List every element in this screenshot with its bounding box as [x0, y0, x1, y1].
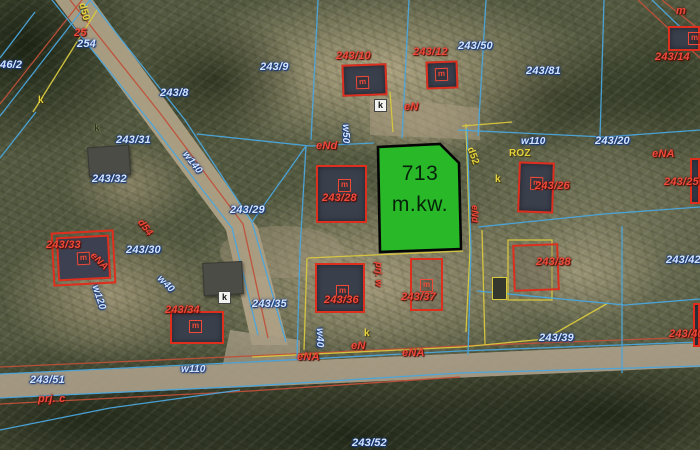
utility-marker-k: k: [218, 291, 231, 304]
map-label-k: k: [94, 124, 100, 134]
map-label-d50: d50: [76, 2, 90, 22]
map-label-ena: eNA: [297, 352, 320, 363]
map-label-254: 254: [77, 39, 96, 50]
map-label-m: m: [676, 6, 686, 17]
map-label-243-34: 243/34: [165, 305, 200, 316]
map-label-243-51: 243/51: [30, 375, 65, 386]
map-label-d54: d54: [135, 218, 154, 238]
map-label-end: eNd: [470, 205, 479, 223]
map-label-243-25: 243/25: [664, 177, 699, 188]
map-label-243-9: 243/9: [260, 62, 289, 73]
map-label-ena: eNA: [88, 251, 110, 273]
map-label-w50: w50: [340, 124, 350, 144]
map-label-243-40: 243/40: [669, 329, 700, 340]
map-label-243-29: 243/29: [230, 205, 265, 216]
map-label-243-31: 243/31: [116, 135, 151, 146]
map-label-243-30: 243/30: [126, 245, 161, 256]
map-label-243-35: 243/35: [252, 299, 287, 310]
map-label-w40: w40: [314, 328, 324, 348]
map-label-w140: w140: [180, 150, 203, 176]
map-label-243-32: 243/32: [92, 174, 127, 185]
map-label-243-14: 243/14: [655, 52, 690, 63]
map-label-243-26: 243/26: [535, 181, 570, 192]
map-label-en: eN: [404, 102, 418, 113]
map-label-prj--c: prj. c: [38, 394, 66, 405]
map-label-243-12: 243/12: [413, 47, 448, 58]
map-label-243-52: 243/52: [352, 438, 387, 449]
map-label-243-39: 243/39: [539, 333, 574, 344]
map-label-w110: w110: [181, 365, 206, 375]
map-label-243-38: 243/38: [536, 257, 571, 268]
map-label-243-33: 243/33: [46, 240, 81, 251]
cadastral-map[interactable]: 713 m.kw. mmmmmmmmm 25254d5046/2k243/824…: [0, 0, 700, 450]
map-label-w120: w120: [89, 284, 106, 311]
map-label-243-36: 243/36: [324, 295, 359, 306]
map-label-ena: eNA: [652, 149, 675, 160]
labels-layer: 25254d5046/2k243/8243/9243/10243/12243/5…: [0, 0, 700, 450]
map-label-243-20: 243/20: [595, 136, 630, 147]
map-label-end: eNd: [316, 141, 337, 152]
map-label-243-28: 243/28: [322, 193, 357, 204]
map-label-en: eN: [351, 341, 365, 352]
map-label-243-81: 243/81: [526, 66, 561, 77]
map-label-243-10: 243/10: [336, 51, 371, 62]
map-label-243-50: 243/50: [458, 41, 493, 52]
utility-marker-k: k: [374, 99, 387, 112]
map-label-d52: d52: [465, 146, 480, 166]
map-label-w110: w110: [521, 137, 546, 147]
map-label-k: k: [495, 175, 501, 185]
map-label-k: k: [38, 96, 44, 106]
map-label-k: k: [364, 329, 370, 339]
map-label-243-37: 243/37: [401, 292, 436, 303]
map-label-ena: eNA: [402, 348, 425, 359]
map-label-prj--w: prj. w: [374, 262, 383, 287]
map-label-46-2: 46/2: [0, 60, 22, 71]
map-label-243-8: 243/8: [160, 88, 189, 99]
map-label-w40: w40: [155, 274, 176, 295]
map-label-243-42: 243/42: [666, 255, 700, 266]
map-label-roz: ROZ: [509, 149, 531, 159]
